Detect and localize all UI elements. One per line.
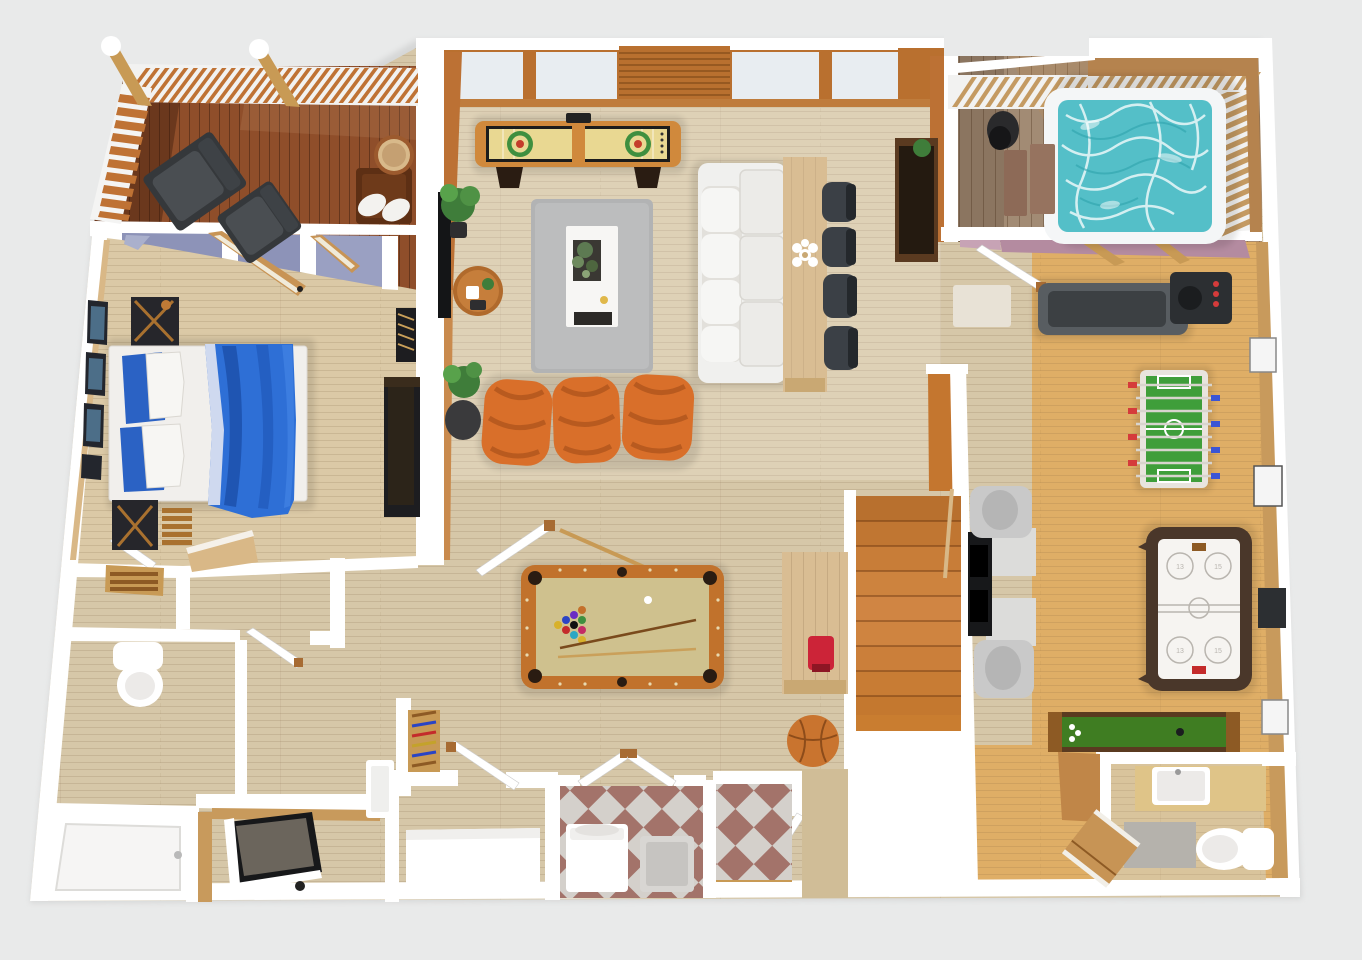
svg-text:15: 15 xyxy=(1214,648,1222,655)
svg-text:13: 13 xyxy=(1176,564,1184,571)
svg-text:15: 15 xyxy=(1214,564,1222,571)
svg-text:13: 13 xyxy=(1176,648,1184,655)
